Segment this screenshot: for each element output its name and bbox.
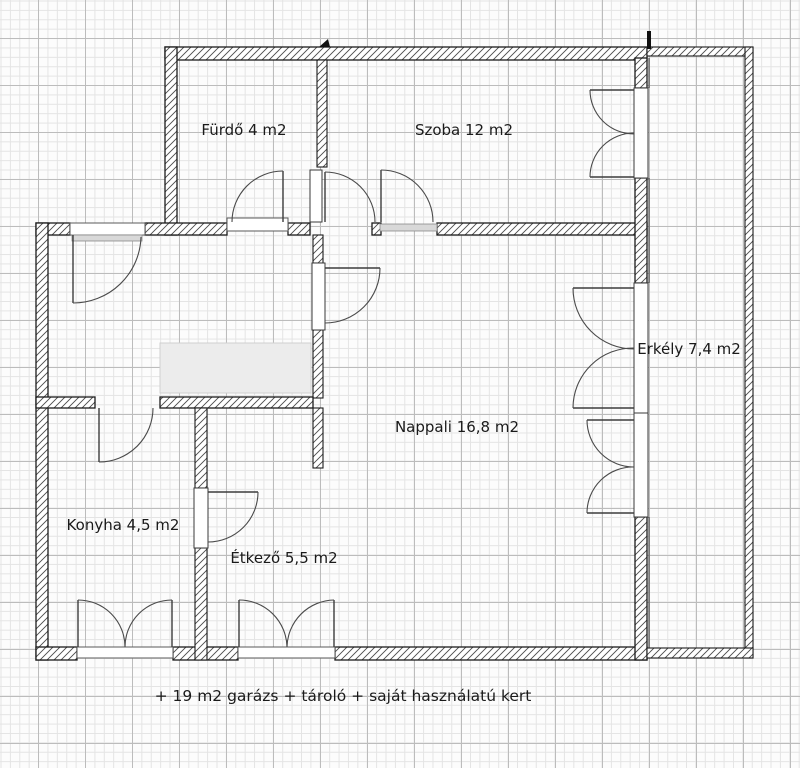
wall-stub	[313, 408, 323, 468]
wall-konyha-divider-1	[195, 408, 207, 488]
wall-tick-mark	[647, 31, 651, 49]
wall-hall-bottom-2	[160, 397, 313, 408]
jamb-konyha-etkezo	[194, 488, 208, 548]
room-label-szoba: Szoba 12 m2	[415, 121, 513, 139]
wall-konyha-divider-2	[195, 548, 207, 660]
konyha-double-door-arcs	[78, 600, 172, 647]
hall-cabinet-block	[160, 343, 311, 393]
hall-konyha-door-arc	[99, 408, 153, 462]
entrance-threshold	[70, 223, 145, 235]
frames-layer	[70, 88, 648, 658]
wall-hall-right-1	[313, 235, 323, 263]
wall-left-outer	[36, 223, 48, 660]
sill-szoba-door2	[380, 224, 437, 231]
wall-erkely-top	[647, 47, 753, 56]
wall-upper-left	[165, 47, 177, 235]
room-label-erkely: Erkély 7,4 m2	[637, 340, 741, 358]
szoba-door1-arc	[325, 172, 375, 222]
szoba-door2-arc	[381, 170, 433, 222]
floor-plan-page: Fürdő 4 m2 Szoba 12 m2 Erkély 7,4 m2 Nap…	[0, 0, 800, 768]
jamb-szoba-door1	[310, 170, 322, 222]
konyha-threshold	[77, 647, 173, 658]
entrance-sill	[72, 235, 142, 241]
wall-furdo-szoba	[317, 60, 327, 167]
room-label-furdo: Fürdő 4 m2	[201, 121, 286, 139]
wall-right-1	[635, 58, 647, 88]
plan-caption: + 19 m2 garázs + tároló + saját használa…	[155, 687, 532, 705]
szoba-balcony-door-arcs	[590, 90, 634, 177]
wall-top	[165, 47, 647, 60]
room-label-etkezo: Étkező 5,5 m2	[230, 548, 337, 567]
furdo-threshold	[227, 218, 288, 231]
etkezo-threshold	[238, 647, 335, 658]
wall-right-3	[635, 517, 647, 660]
jamb-szoba-balcony	[634, 88, 648, 178]
hall-nappali-door-arc	[325, 268, 380, 323]
nappali-balcony-door2-arcs	[587, 420, 634, 513]
entrance-door-arc	[73, 237, 141, 303]
wall-band-3	[288, 223, 310, 235]
wall-bottom-3	[335, 647, 647, 660]
wall-hall-right-2	[313, 330, 323, 398]
etkezo-double-door-arcs	[239, 600, 334, 647]
wall-band-5	[437, 223, 647, 235]
room-label-nappali: Nappali 16,8 m2	[395, 418, 519, 436]
wall-bottom-1	[36, 647, 77, 660]
wall-band-2	[145, 223, 227, 235]
jamb-nappali-balcony-2	[634, 413, 648, 517]
floor-plan-drawing: Fürdő 4 m2 Szoba 12 m2 Erkély 7,4 m2 Nap…	[0, 0, 800, 768]
marks-layer	[319, 31, 651, 49]
wall-erkely-bottom	[647, 648, 753, 658]
doors-layer	[73, 90, 634, 647]
furdo-door-arc	[232, 171, 283, 222]
jamb-hall-nappali	[312, 263, 325, 330]
wall-erkely-right	[745, 47, 753, 658]
north-mark	[319, 39, 330, 47]
wall-hall-bottom-1	[36, 397, 95, 408]
wall-right-2	[635, 178, 647, 283]
room-label-konyha: Konyha 4,5 m2	[67, 516, 180, 534]
nappali-balcony-door1-arcs	[573, 288, 634, 408]
konyha-etkezo-door-arc	[208, 492, 258, 542]
